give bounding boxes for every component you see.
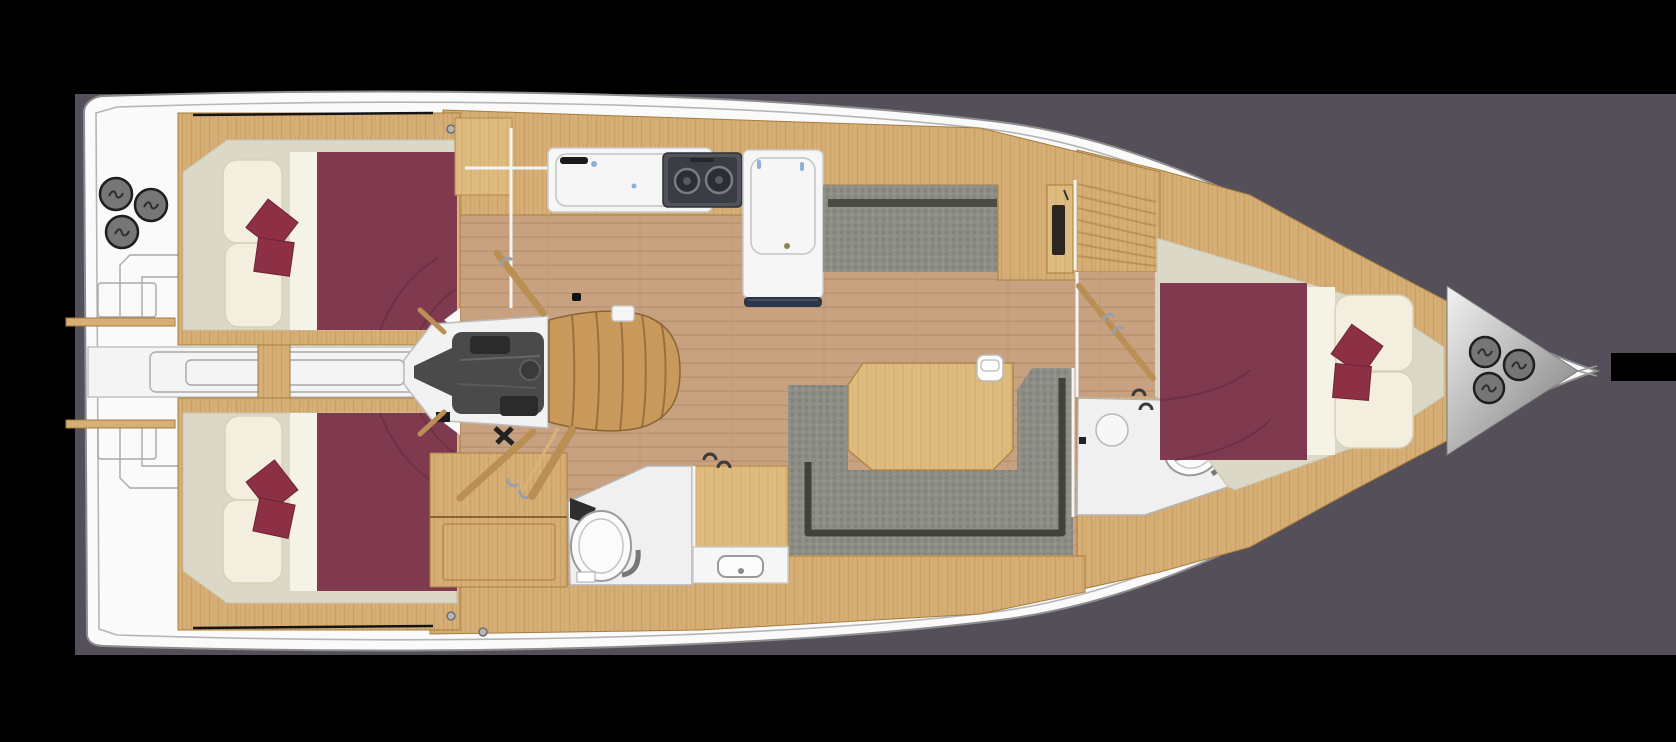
grab-rail <box>744 297 822 307</box>
tap-dot <box>632 184 637 189</box>
basin-faucet <box>738 568 744 574</box>
door-lock <box>1079 437 1086 444</box>
hatch-latch <box>572 293 581 301</box>
engine-compartment <box>404 316 548 428</box>
dinette <box>788 355 1073 555</box>
anchor-bar <box>1611 353 1676 381</box>
locker-slot <box>1052 205 1065 255</box>
mast-step-panel <box>455 118 512 195</box>
transom-garage <box>88 340 432 404</box>
toilet <box>571 511 631 581</box>
cockpit-sole-strip <box>66 318 175 326</box>
faucet <box>560 157 588 164</box>
bed-sheet-band <box>1307 287 1335 455</box>
cockpit-sole-strip <box>66 420 175 428</box>
throw-cushion <box>1333 363 1372 400</box>
settee-seat <box>823 185 998 272</box>
toilet-hinge <box>577 572 595 582</box>
floor-plan <box>0 0 1676 742</box>
bed-sheet-band <box>290 413 317 591</box>
deck-fitting <box>447 125 455 133</box>
settee-back-rail <box>828 199 997 207</box>
switch-panel <box>612 306 634 321</box>
throw-cushion <box>254 238 294 277</box>
double-berth <box>317 152 457 330</box>
keel-beam <box>258 340 290 404</box>
deck-fitting <box>479 628 487 636</box>
fridge-counter <box>743 150 823 298</box>
bed-sheet-band <box>290 152 317 330</box>
throw-cushion <box>253 498 295 539</box>
settee-arm-left <box>788 385 848 470</box>
stove-handle <box>690 158 714 162</box>
saloon-settee <box>823 185 998 272</box>
v-berth <box>1160 283 1307 460</box>
aft-cabin-port <box>178 398 460 630</box>
deck-fitting <box>447 612 455 620</box>
tap-dot <box>591 161 597 167</box>
shower-drain <box>1096 414 1128 446</box>
drain-dot <box>784 243 790 249</box>
nav-locker <box>1047 180 1075 273</box>
shower-grate <box>695 466 788 547</box>
screenshot-stage <box>0 0 1676 742</box>
settee-base <box>788 470 1073 555</box>
